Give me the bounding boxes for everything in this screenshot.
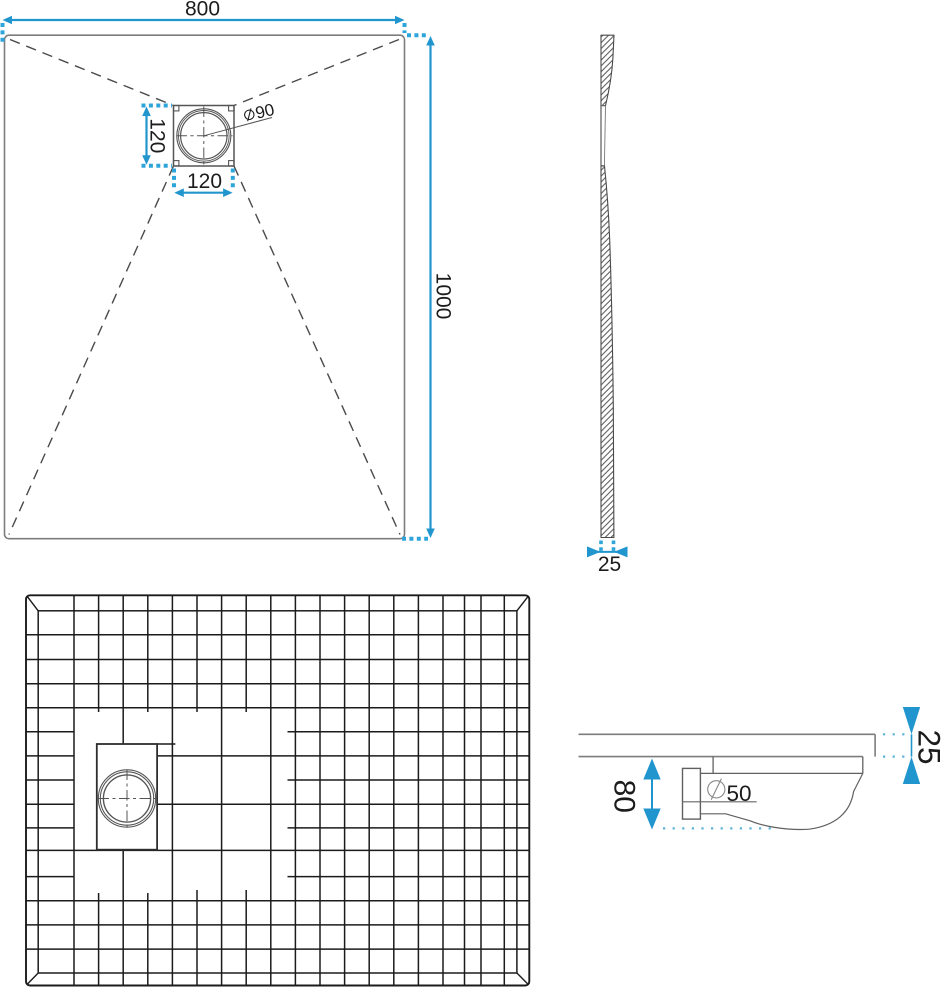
svg-text:80: 80 (608, 780, 641, 813)
svg-text:1000: 1000 (431, 273, 454, 320)
svg-text:120: 120 (187, 170, 222, 193)
svg-text:800: 800 (185, 0, 220, 21)
svg-text:25: 25 (912, 729, 942, 764)
svg-text:120: 120 (146, 118, 169, 153)
svg-text:25: 25 (598, 553, 621, 576)
